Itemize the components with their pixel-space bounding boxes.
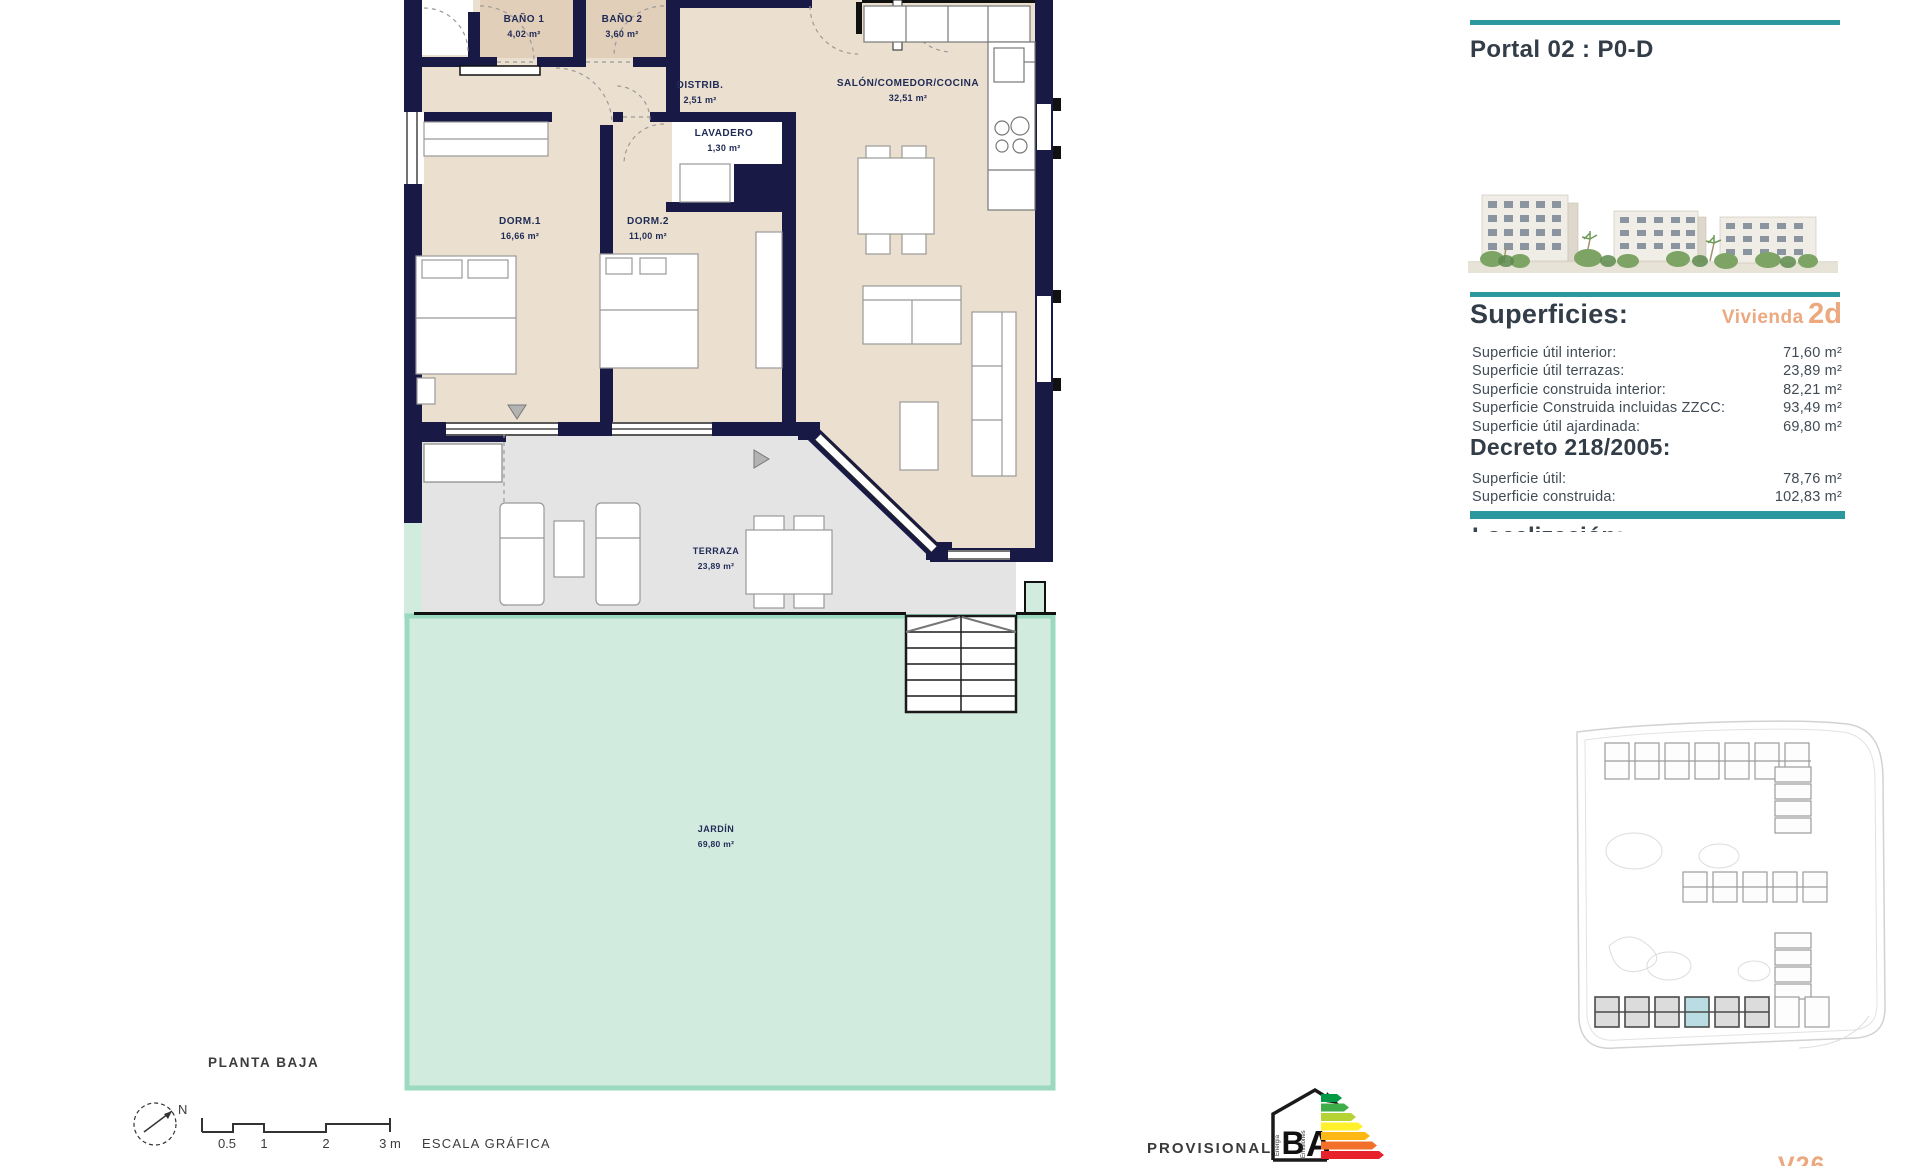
table-row: Superficie Construida incluidas ZZCC: 93…: [1472, 399, 1842, 417]
room-label-salon: SALÓN/COMEDOR/COCINA 32,51 m²: [837, 76, 979, 106]
energy-word-energia: Energía: [1275, 1134, 1281, 1156]
mid-rule: [1470, 292, 1840, 297]
north-label: N: [178, 1102, 187, 1117]
stairs: [906, 616, 1016, 712]
room-label-bano2: BAÑO 2 3,60 m²: [602, 12, 643, 42]
table-row: Superficie útil terrazas: 23,89 m²: [1472, 362, 1842, 380]
bottom-rule: [1470, 511, 1845, 519]
energy-word-emisiones: Emisiones: [1301, 1130, 1307, 1158]
superficies-table: Superficie útil interior: 71,60 m² Super…: [1472, 344, 1842, 436]
room-label-terraza: TERRAZA 23,89 m²: [693, 544, 740, 574]
top-rule: [1470, 20, 1840, 25]
table-row: Superficie útil: 78,76 m²: [1472, 470, 1842, 488]
room-label-dorm1: DORM.1 16,66 m²: [499, 214, 541, 244]
building-render-image: [1468, 181, 1838, 278]
vivienda-label: Vivienda 2d: [1722, 298, 1842, 331]
room-label-bano1: BAÑO 1 4,02 m²: [504, 12, 545, 42]
table-row: Superficie construida interior: 82,21 m²: [1472, 381, 1842, 399]
scale-tick: 1: [260, 1136, 267, 1151]
table-row: Superficie construida: 102,83 m²: [1472, 488, 1842, 506]
scale-tick: 0.5: [218, 1136, 236, 1151]
provisional-label: PROVISIONAL: [1147, 1140, 1272, 1157]
scale-tick: 3 m: [379, 1136, 401, 1151]
scale-caption: ESCALA GRÁFICA: [422, 1136, 551, 1151]
room-label-dorm2: DORM.2 11,00 m²: [627, 214, 669, 244]
scale-tick: 2: [322, 1136, 329, 1151]
decreto-table: Superficie útil: 78,76 m² Superficie con…: [1472, 470, 1842, 507]
room-label-lavadero: LAVADERO 1,30 m²: [695, 126, 754, 156]
room-label-distrib: DISTRIB. 2,51 m²: [677, 78, 724, 108]
energy-arrows-icon: [1321, 1094, 1384, 1159]
floor-plan-svg: [0, 0, 1100, 1166]
decreto-heading: Decreto 218/2005:: [1470, 434, 1671, 461]
superficies-heading: Superficies:: [1470, 299, 1628, 330]
plan-title: PLANTA BAJA: [208, 1055, 319, 1070]
clipped-section-heading: Localización:: [1472, 523, 1792, 532]
table-row: Superficie útil interior: 71,60 m²: [1472, 344, 1842, 362]
site-plan: [1549, 716, 1892, 1053]
portal-title: Portal 02 : P0-D: [1470, 36, 1654, 64]
version-label: V26: [1778, 1152, 1848, 1166]
north-and-scale: N 0.5 1 2 3 m ESCALA GRÁFICA: [100, 1090, 580, 1160]
room-label-jardin: JARDÍN 69,80 m²: [698, 822, 735, 852]
energy-certificate-icon: B A Energía Emisiones: [1263, 1082, 1388, 1164]
